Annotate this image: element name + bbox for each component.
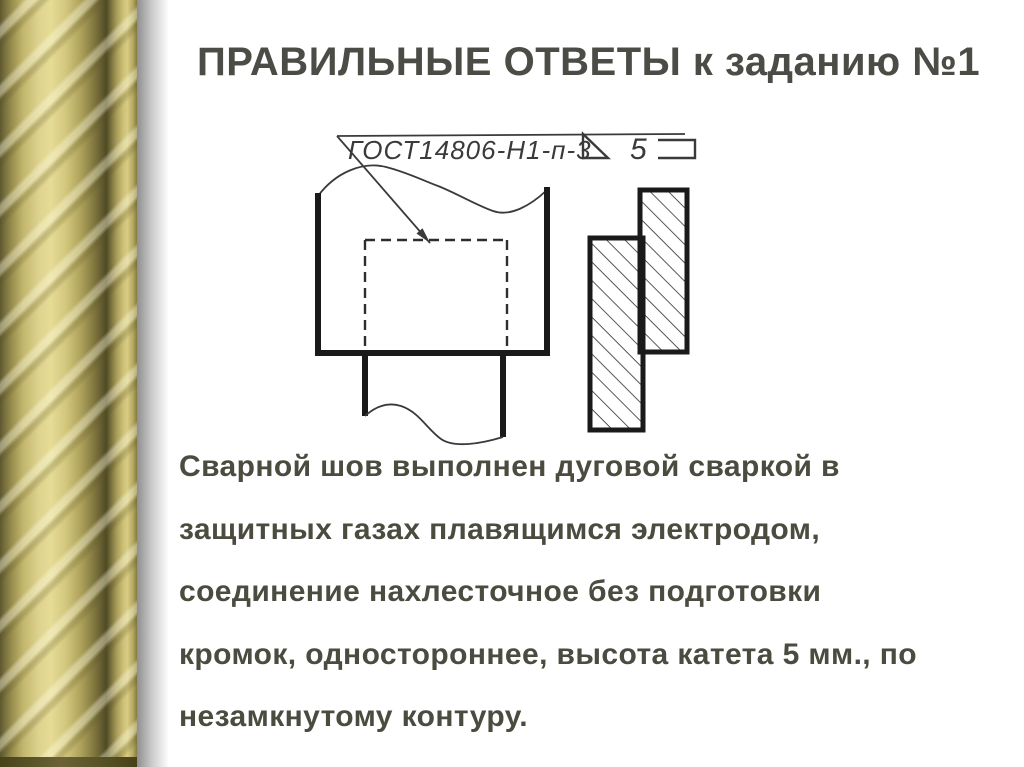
weld-joint-drawing: ГОСТ14806-Н1-п-3 5 bbox=[280, 115, 760, 460]
gold-rope-border-bottom-cap bbox=[0, 757, 137, 767]
hidden-contour-dashed bbox=[365, 240, 507, 351]
section-left-plate-hatch bbox=[590, 238, 643, 430]
fillet-leg-size-text: 5 bbox=[630, 133, 647, 166]
answer-line: Сварной шов выполнен дуговой сваркой в bbox=[179, 436, 999, 499]
section-right-plate-hatch bbox=[640, 190, 687, 352]
section-view bbox=[590, 190, 687, 430]
answer-text-block: Сварной шов выполнен дуговой сваркой в з… bbox=[179, 436, 999, 749]
weld-designation-text: ГОСТ14806-Н1-п-3 bbox=[348, 135, 592, 165]
answer-line: соединение нахлесточное без подготовки bbox=[179, 561, 999, 624]
open-contour-symbol-icon bbox=[658, 140, 695, 158]
break-line-top bbox=[318, 165, 547, 212]
answer-line: кромок, одностороннее, высота катета 5 м… bbox=[179, 624, 999, 687]
answer-line: незамкнутому контуру. bbox=[179, 686, 999, 749]
border-shadow bbox=[137, 0, 169, 767]
front-view-lower-plate bbox=[365, 356, 503, 444]
gold-rope-border bbox=[0, 0, 137, 767]
answer-line: защитных газах плавящимся электродом, bbox=[179, 499, 999, 562]
slide-title: ПРАВИЛЬНЫЕ ОТВЕТЫ к заданию №1 bbox=[197, 40, 987, 85]
front-view-upper-plate bbox=[315, 165, 550, 356]
